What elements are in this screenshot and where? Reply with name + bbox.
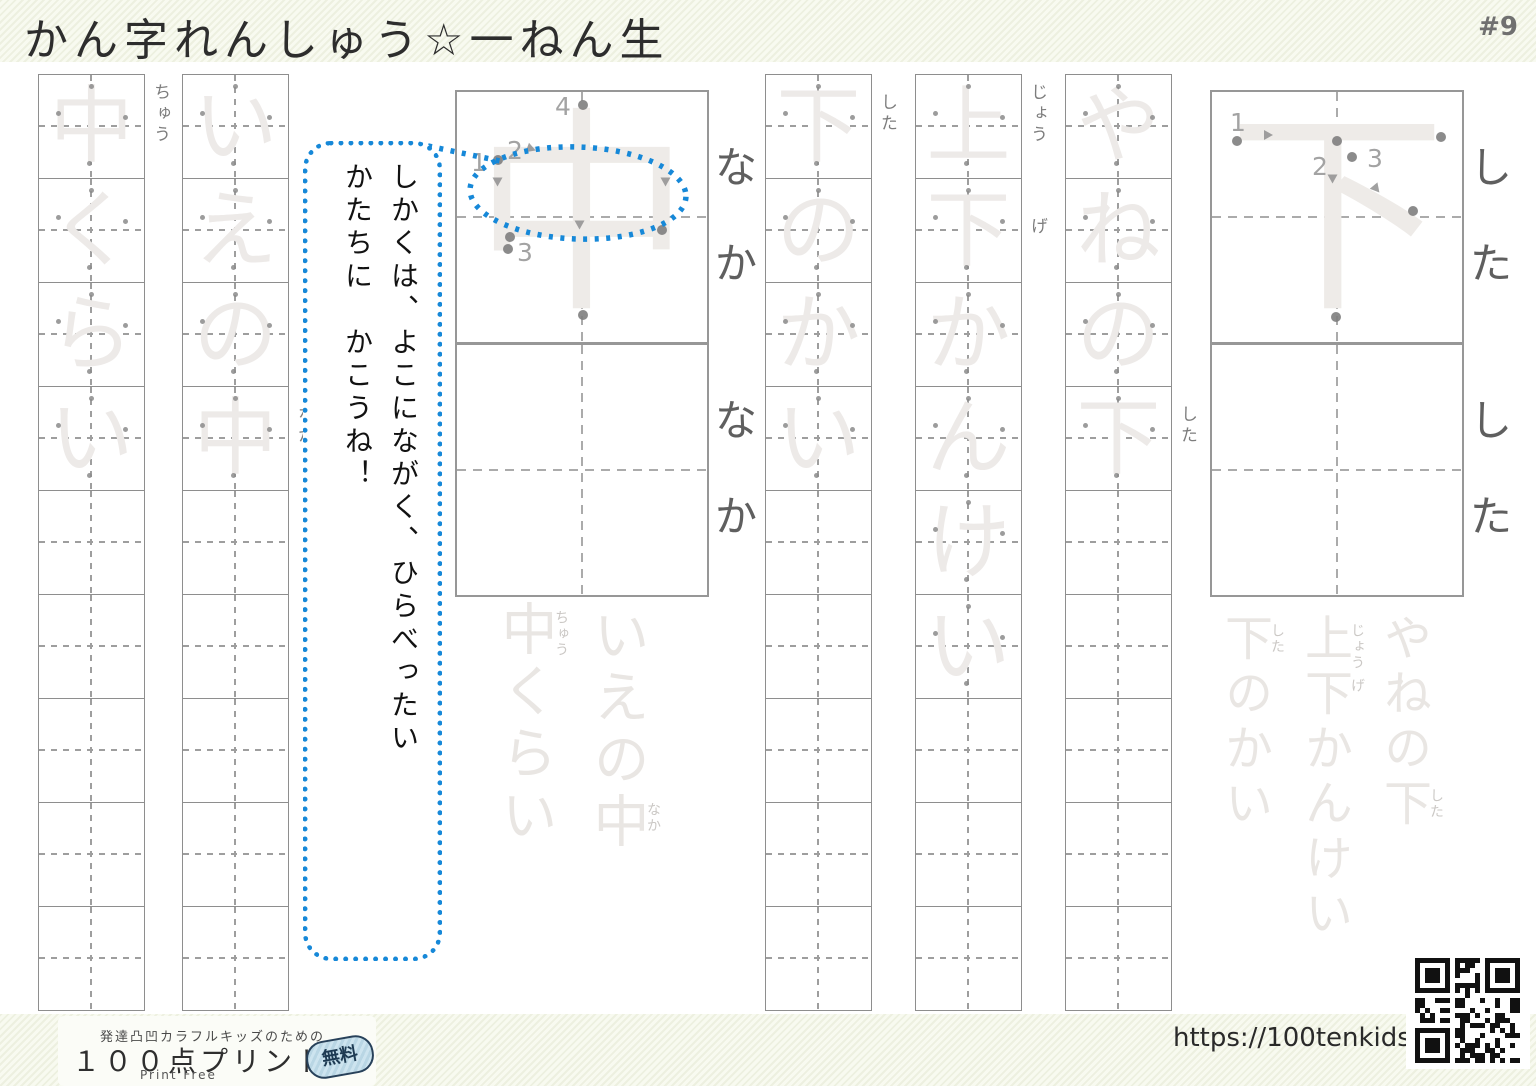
stroke-arrow-icon: [493, 178, 503, 187]
stroke-dot: [123, 219, 128, 224]
practice-square: [182, 802, 289, 907]
stroke-dot: [657, 225, 667, 235]
stroke-dot: [850, 427, 855, 432]
practice-square: や: [1065, 74, 1172, 179]
practice-square: 上じょう: [915, 74, 1022, 179]
reading-label: な: [715, 134, 757, 195]
practice-column-ie-no-naka: いえの中なか: [182, 75, 287, 1011]
faint-furigana-label: した: [1429, 788, 1443, 820]
stroke-dot: [1150, 323, 1155, 328]
practice-square: [765, 490, 872, 595]
practice-square: 下げ: [915, 178, 1022, 283]
bubble-line-2: かたちに かこうね！: [337, 162, 377, 756]
big-practice-box-shita-traced: 下123した: [1210, 90, 1464, 344]
stroke-dot: [1116, 396, 1121, 401]
stroke-dot: [1000, 219, 1005, 224]
stroke-dot: [814, 473, 819, 478]
practice-square: い: [915, 594, 1022, 699]
stroke-dot: [123, 115, 128, 120]
practice-square: の: [765, 178, 872, 283]
stroke-dot: [200, 215, 205, 220]
stroke-dot: [87, 473, 92, 478]
practice-square: 下した: [765, 74, 872, 179]
stroke-arrow-icon: [1328, 175, 1338, 184]
practice-square: ら: [38, 282, 145, 387]
stroke-dot: [505, 232, 515, 242]
practice-square: [1065, 594, 1172, 699]
practice-square: [38, 594, 145, 699]
stroke-arrow-icon: [575, 221, 585, 230]
stroke-dot: [850, 323, 855, 328]
practice-square: [765, 906, 872, 1011]
practice-square: け: [915, 490, 1022, 595]
practice-square: [765, 802, 872, 907]
stroke-dot: [89, 396, 94, 401]
stroke-number: 2: [507, 136, 523, 165]
stroke-dot: [850, 219, 855, 224]
stroke-dot: [933, 631, 938, 636]
reading-label: し: [1470, 387, 1512, 448]
practice-square: [182, 594, 289, 699]
stroke-dot: [231, 369, 236, 374]
stroke-dot: [966, 604, 971, 609]
page-number: #9: [1478, 12, 1518, 42]
stroke-dot: [200, 111, 205, 116]
stroke-dot: [123, 427, 128, 432]
reading-label: た: [1470, 483, 1512, 544]
reading-label: か: [715, 483, 757, 544]
stroke-dot: [1083, 215, 1088, 220]
practice-square: [1065, 906, 1172, 1011]
stroke-number: 3: [1367, 144, 1383, 173]
stroke-dot: [267, 427, 272, 432]
stroke-dot: [1116, 292, 1121, 297]
worksheet-page: かん字れんしゅう☆一ねん生 #9 中ちゅうくらい いえの中なか 下したのかい 上…: [0, 0, 1536, 1086]
stroke-dot: [1083, 319, 1088, 324]
stroke-dot: [966, 84, 971, 89]
practice-square: ん: [915, 386, 1022, 491]
furigana-label: した: [1175, 405, 1200, 447]
furigana-label: ちゅう: [148, 83, 173, 146]
practice-square: [1065, 802, 1172, 907]
stroke-dot: [966, 500, 971, 505]
stroke-dot: [964, 473, 969, 478]
speech-bubble: しかくは、よこにながく、ひらべったい かたちに かこうね！: [303, 141, 442, 961]
stroke-dot: [87, 161, 92, 166]
stroke-dot: [56, 215, 61, 220]
furigana-label: した: [875, 93, 900, 135]
reading-label: か: [715, 230, 757, 291]
stroke-dot: [964, 577, 969, 582]
stroke-dot: [56, 111, 61, 116]
practice-square: 中なか: [182, 386, 289, 491]
practice-square: か: [915, 282, 1022, 387]
practice-square: [915, 698, 1022, 803]
stroke-dot: [964, 161, 969, 166]
stroke-number: 4: [555, 92, 571, 121]
stroke-dot: [231, 473, 236, 478]
practice-square: く: [38, 178, 145, 283]
stroke-arrow-icon: [661, 178, 671, 187]
stroke-dot: [1408, 206, 1418, 216]
stroke-dot: [814, 161, 819, 166]
stroke-dot: [578, 310, 588, 320]
stroke-dot: [1331, 312, 1341, 322]
bubble-line-1: しかくは、よこにながく、ひらべったい: [383, 162, 423, 756]
practice-square: [1065, 698, 1172, 803]
stroke-arrow-icon: [1264, 130, 1273, 140]
stroke-dot: [816, 396, 821, 401]
stroke-dot: [231, 265, 236, 270]
stroke-dot: [1116, 188, 1121, 193]
practice-square: い: [765, 386, 872, 491]
faint-furigana-label: ちゅう: [554, 610, 568, 658]
stroke-dot: [233, 292, 238, 297]
practice-square: 中ちゅう: [38, 74, 145, 179]
stroke-dot: [783, 111, 788, 116]
faint-phrase-column: 中くらいちゅう: [496, 600, 552, 848]
stroke-dot: [1436, 132, 1446, 142]
stroke-dot: [1114, 369, 1119, 374]
stroke-dot: [783, 319, 788, 324]
stroke-dot: [933, 319, 938, 324]
stroke-dot: [933, 527, 938, 532]
practice-square: [915, 906, 1022, 1011]
practice-square: ね: [1065, 178, 1172, 283]
reading-label: な: [715, 387, 757, 448]
stroke-dot: [933, 423, 938, 428]
big-practice-box-shita-empty: した: [1210, 343, 1464, 597]
stroke-number: 1: [471, 148, 487, 177]
practice-square: の: [1065, 282, 1172, 387]
logo-subtitle: Print Free: [140, 1068, 217, 1082]
practice-square: [38, 906, 145, 1011]
stroke-dot: [233, 188, 238, 193]
stroke-dot: [1114, 473, 1119, 478]
stroke-dot: [267, 115, 272, 120]
practice-square: い: [182, 74, 289, 179]
stroke-dot: [783, 423, 788, 428]
stroke-dot: [578, 100, 588, 110]
faint-phrase-column: やねの下した: [1379, 613, 1427, 833]
big-practice-box-naka-traced: 中1234なか: [455, 90, 709, 344]
stroke-dot: [1000, 635, 1005, 640]
stroke-dot: [1150, 427, 1155, 432]
furigana-label: じょう: [1025, 83, 1050, 146]
stroke-dot: [233, 84, 238, 89]
stroke-dot: [964, 369, 969, 374]
stroke-dot: [200, 423, 205, 428]
practice-square: か: [765, 282, 872, 387]
reading-label: し: [1470, 134, 1512, 195]
stroke-dot: [1232, 136, 1242, 146]
faint-furigana-label: げ: [1350, 678, 1364, 694]
stroke-dot: [966, 188, 971, 193]
practice-square: [182, 906, 289, 1011]
practice-square: [182, 698, 289, 803]
stroke-dot: [814, 265, 819, 270]
stroke-dot: [123, 323, 128, 328]
bubble-text: しかくは、よこにながく、ひらべったい かたちに かこうね！: [331, 162, 429, 756]
stroke-dot: [89, 188, 94, 193]
faint-phrase-column: 上下かんけいじょうげ: [1300, 613, 1348, 943]
practice-square: [915, 802, 1022, 907]
stroke-dot: [1114, 161, 1119, 166]
practice-column-naka-kurai: 中ちゅうくらい: [38, 75, 143, 1011]
stroke-dot: [89, 292, 94, 297]
big-practice-box-naka-empty: なか: [455, 343, 709, 597]
faint-furigana-label: じょう: [1350, 623, 1364, 671]
practice-square: [182, 490, 289, 595]
stroke-dot: [200, 319, 205, 324]
stroke-dot: [933, 215, 938, 220]
stroke-dot: [964, 265, 969, 270]
stroke-dot: [816, 188, 821, 193]
practice-square: い: [38, 386, 145, 491]
stroke-dot: [1347, 152, 1357, 162]
stroke-dot: [267, 323, 272, 328]
faint-phrase-column: 下のかいした: [1220, 613, 1268, 833]
stroke-dot: [816, 292, 821, 297]
practice-square: [765, 698, 872, 803]
stroke-dot: [1083, 423, 1088, 428]
practice-column-shita-no-kai: 下したのかい: [765, 75, 870, 1011]
stroke-dot: [783, 215, 788, 220]
stroke-dot: [231, 161, 236, 166]
practice-square: え: [182, 178, 289, 283]
stroke-number: 3: [517, 238, 533, 267]
practice-column-yane-no-shita: やねの下した: [1065, 75, 1170, 1011]
practice-column-jouge-kankei: 上じょう下げかんけい: [915, 75, 1020, 1011]
reading-label: た: [1470, 230, 1512, 291]
stroke-number: 1: [1230, 108, 1246, 137]
stroke-dot: [1000, 323, 1005, 328]
stroke-dot: [814, 369, 819, 374]
faint-phrase-column: いえの中なか: [588, 606, 644, 854]
practice-square: [38, 698, 145, 803]
stroke-dot: [816, 84, 821, 89]
stroke-dot: [1000, 115, 1005, 120]
stroke-dot: [966, 292, 971, 297]
stroke-dot: [87, 265, 92, 270]
stroke-dot: [1114, 265, 1119, 270]
stroke-dot: [1150, 219, 1155, 224]
stroke-dot: [1332, 136, 1342, 146]
stroke-dot: [964, 681, 969, 686]
big-traced-character: 中: [457, 92, 707, 342]
stroke-dot: [1150, 115, 1155, 120]
stroke-dot: [1000, 427, 1005, 432]
stroke-dot: [1000, 531, 1005, 536]
stroke-dot: [89, 84, 94, 89]
faint-furigana-label: なか: [646, 802, 660, 834]
stroke-dot: [503, 244, 513, 254]
furigana-label: げ: [1025, 217, 1050, 238]
stroke-dot: [493, 155, 503, 165]
big-traced-character: 下: [1212, 92, 1462, 342]
practice-square: [1065, 490, 1172, 595]
practice-square: 下した: [1065, 386, 1172, 491]
qr-code: [1406, 953, 1530, 1069]
practice-square: [765, 594, 872, 699]
stroke-number: 2: [1312, 152, 1328, 181]
practice-square: の: [182, 282, 289, 387]
stroke-dot: [267, 219, 272, 224]
stroke-dot: [56, 423, 61, 428]
qr-code-image: [1406, 953, 1530, 1069]
stroke-dot: [966, 396, 971, 401]
stroke-dot: [56, 319, 61, 324]
stroke-dot: [850, 115, 855, 120]
stroke-dot: [1083, 111, 1088, 116]
practice-square: [38, 490, 145, 595]
practice-square: [38, 802, 145, 907]
stroke-dot: [233, 396, 238, 401]
stroke-dot: [1116, 84, 1121, 89]
header-band: かん字れんしゅう☆一ねん生 #9: [0, 0, 1536, 62]
stroke-dot: [87, 369, 92, 374]
faint-furigana-label: した: [1270, 623, 1284, 655]
stroke-dot: [933, 111, 938, 116]
page-title: かん字れんしゅう☆一ねん生: [24, 4, 669, 68]
